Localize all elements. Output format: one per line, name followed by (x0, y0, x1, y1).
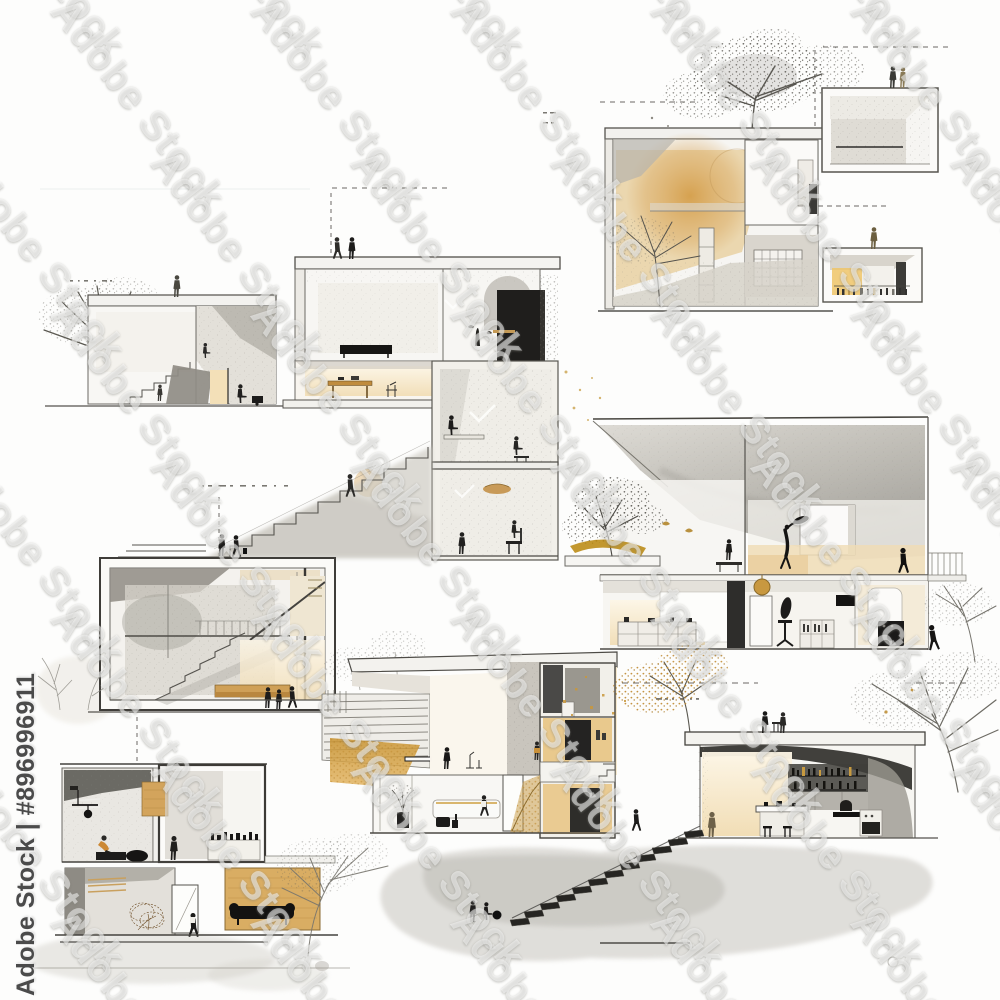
person-figure (889, 66, 896, 88)
building-mid-right (593, 417, 966, 651)
building-bottom-center (322, 630, 620, 838)
person-figure (900, 67, 907, 88)
stock-image-canvas: Adobe StockAdobe StockAdobe StockAdobe S… (0, 0, 1000, 1000)
building-top-right (598, 128, 833, 311)
person-figure (780, 712, 787, 733)
person-figure (870, 227, 877, 249)
person-figure (348, 237, 355, 259)
person-figure (173, 275, 180, 297)
building-bottom-right (678, 711, 938, 838)
illustration (0, 0, 1000, 1000)
striped-ramp (322, 690, 430, 788)
room-right (823, 227, 922, 302)
terrace-railing (928, 553, 963, 575)
person-figure (632, 809, 641, 831)
grand-staircase-mid (118, 441, 432, 558)
stacked-rooms (534, 663, 615, 838)
gold-dust (565, 371, 602, 422)
watermark-credit: Adobe Stock | #896996911 (12, 673, 41, 996)
building-left (38, 275, 283, 406)
person-figure (761, 711, 768, 733)
person-figure (333, 237, 342, 259)
bare-tree-right (924, 582, 996, 662)
